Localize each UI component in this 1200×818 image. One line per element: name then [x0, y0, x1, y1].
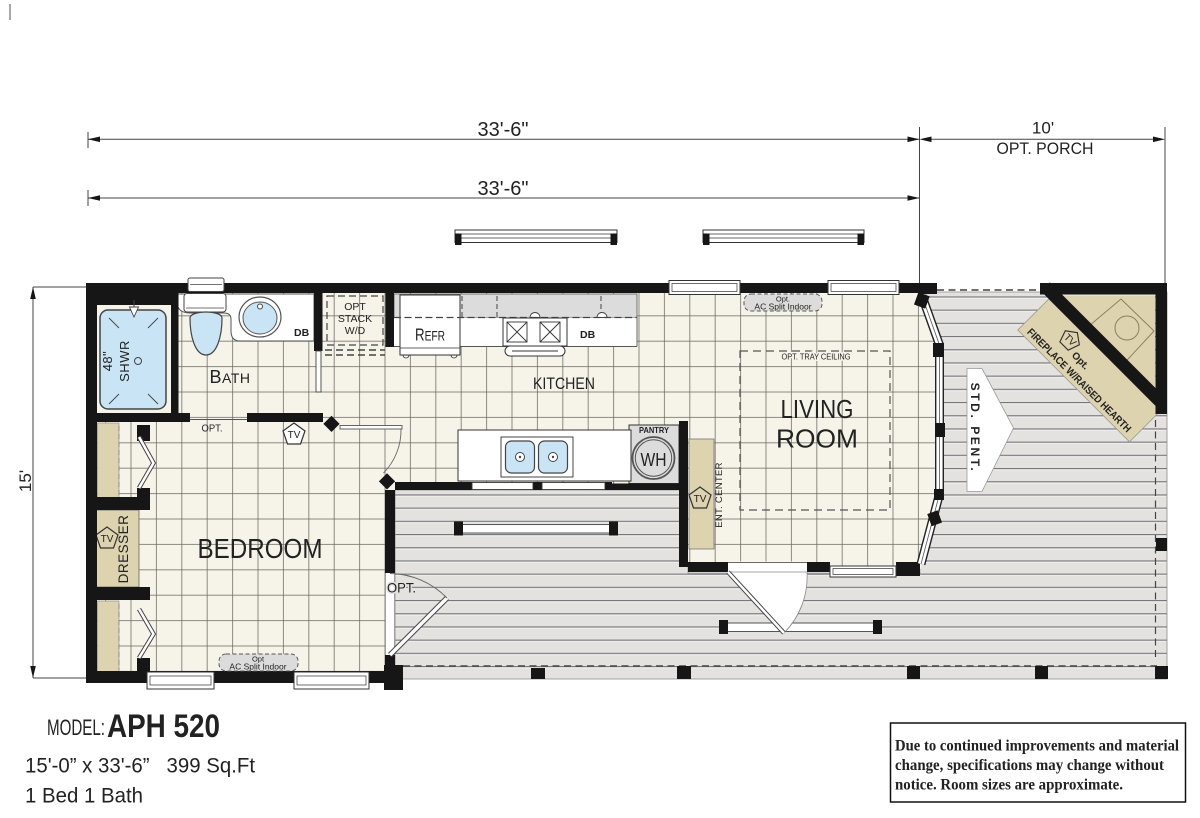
svg-text:OPT: OPT	[344, 301, 366, 313]
svg-text:BATH: BATH	[210, 367, 251, 387]
svg-text:33'-6": 33'-6"	[478, 119, 529, 141]
svg-text:WH: WH	[641, 450, 667, 470]
svg-text:OPT. TRAY CEILING: OPT. TRAY CEILING	[782, 352, 851, 362]
svg-text:LIVING: LIVING	[781, 394, 854, 424]
svg-text:Due to continued improvements: Due to continued improvements and materi…	[895, 738, 1180, 755]
svg-text:W/D: W/D	[345, 325, 366, 337]
svg-text:10': 10'	[1032, 119, 1054, 138]
svg-text:15': 15'	[16, 470, 35, 492]
svg-text:STD. PENT.: STD. PENT.	[968, 383, 982, 474]
svg-text:DB: DB	[294, 327, 310, 339]
svg-text:SHWR: SHWR	[117, 340, 132, 382]
svg-text:TV: TV	[694, 494, 707, 505]
svg-text:change, specifications may cha: change, specifications may change withou…	[895, 757, 1165, 774]
svg-text:OPT.: OPT.	[202, 424, 223, 435]
svg-text:OPT. PORCH: OPT. PORCH	[997, 139, 1094, 158]
svg-text:STACK: STACK	[338, 313, 372, 325]
svg-text:KITCHEN: KITCHEN	[533, 374, 595, 393]
svg-text:APH 520: APH 520	[107, 708, 220, 744]
svg-text:TV: TV	[101, 534, 114, 545]
svg-text:ENT. CENTER: ENT. CENTER	[714, 462, 725, 528]
svg-text:33'-6": 33'-6"	[478, 178, 529, 200]
svg-text:BEDROOM: BEDROOM	[198, 533, 323, 564]
svg-text:notice. Room sizes are approxi: notice. Room sizes are approximate.	[895, 777, 1123, 794]
svg-text:DRESSER: DRESSER	[116, 515, 131, 584]
svg-text:AC Split Indoor: AC Split Indoor	[229, 662, 286, 672]
svg-text:TV: TV	[288, 430, 301, 441]
svg-text:OPT.: OPT.	[387, 580, 416, 596]
svg-text:MODEL:: MODEL:	[47, 715, 105, 740]
svg-text:48": 48"	[100, 351, 115, 372]
svg-text:AC Split Indoor: AC Split Indoor	[754, 302, 811, 312]
svg-text:ROOM: ROOM	[776, 424, 858, 454]
svg-text:PANTRY: PANTRY	[639, 425, 669, 435]
svg-text:1 Bed 1 Bath: 1 Bed 1 Bath	[25, 785, 143, 808]
svg-text:15'-0” x 33'-6” 399 Sq.Ft: 15'-0” x 33'-6” 399 Sq.Ft	[25, 755, 255, 778]
svg-text:DB: DB	[580, 329, 596, 341]
